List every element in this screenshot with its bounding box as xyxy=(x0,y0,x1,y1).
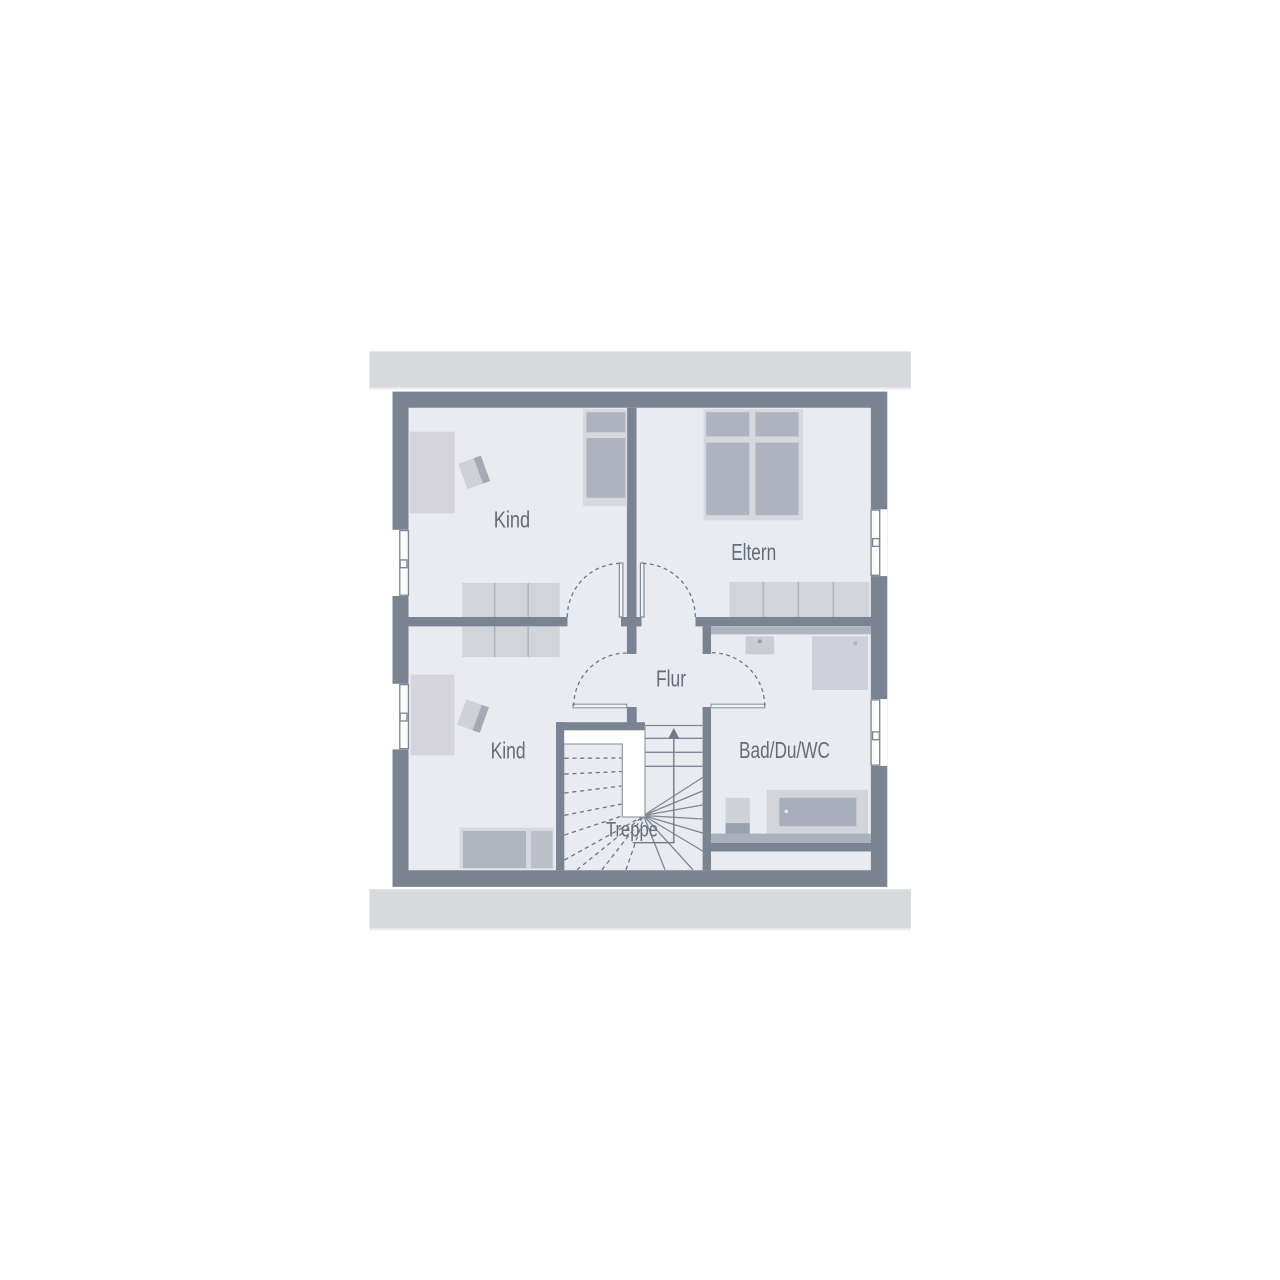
svg-text:Kind: Kind xyxy=(494,507,531,533)
svg-text:Eltern: Eltern xyxy=(731,539,776,565)
svg-text:Flur: Flur xyxy=(656,666,686,692)
svg-text:Treppe: Treppe xyxy=(606,818,658,841)
svg-text:Kind: Kind xyxy=(491,738,526,764)
svg-text:Bad/Du/WC: Bad/Du/WC xyxy=(739,737,830,763)
